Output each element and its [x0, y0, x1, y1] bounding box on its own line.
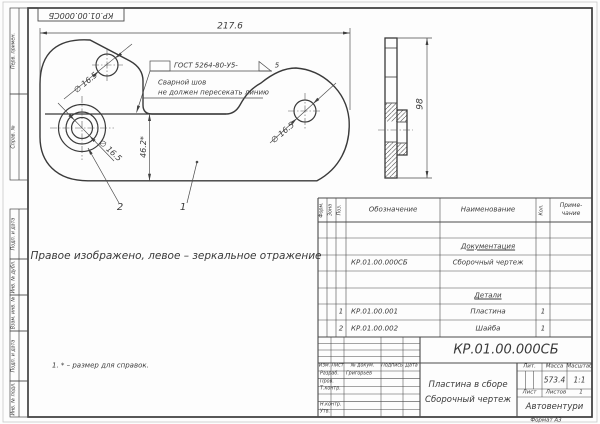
- spec-header-note-line2: чание: [562, 211, 581, 217]
- margin-label-inv-podl: Инв. № подл.: [12, 382, 17, 415]
- dim-height-label: 98: [417, 98, 426, 109]
- spec-section-parts: Детали: [474, 293, 501, 300]
- titleblock-role-developed: Разраб.: [320, 373, 339, 378]
- spec-row-pos: 2: [339, 325, 343, 332]
- weld-leg-label: 5: [275, 63, 279, 70]
- weld-note-line1: Сварной шов: [158, 80, 206, 87]
- margin-label-inv-dubl: Инв. № дубл.: [12, 261, 17, 294]
- spec-row-qty: 1: [541, 309, 545, 316]
- spec-header-name: Наименование: [461, 207, 515, 214]
- mirror-note: Правое изображено, левое – зеркальное от…: [30, 251, 321, 262]
- titleblock-scale-value: 1:1: [573, 376, 585, 384]
- titleblock-doc-name: Пластина в сборе: [428, 381, 507, 390]
- spec-row-designation: КР.01.00.001: [351, 309, 398, 316]
- spec-header-note-line1: Приме-: [560, 203, 583, 209]
- spec-row-name: Шайба: [476, 325, 501, 332]
- spec-header-pos: Поз.: [339, 205, 344, 216]
- titleblock-sheets-value: 1: [579, 390, 583, 396]
- margin-label-podp-data-2: Подп. и дата: [12, 340, 17, 373]
- dim-width-label: 217.6: [217, 23, 243, 32]
- spec-row-name: Сборочный чертеж: [453, 260, 524, 267]
- format-label: Формат А3: [530, 418, 561, 424]
- titleblock-litera-label: Лит.: [523, 364, 536, 370]
- drawing-sheet: КР.01.00.000СБ Перв. примен. Справ. № По…: [0, 0, 600, 424]
- titleblock-mass-label: Масса: [546, 364, 564, 370]
- spec-section-documentation: Документация: [461, 243, 515, 250]
- titleblock-company: Автовентури: [526, 403, 584, 412]
- titleblock-scale-label: Масштаб: [566, 364, 592, 370]
- spec-header-zone: Зона: [329, 204, 334, 216]
- spec-row-qty: 1: [541, 325, 545, 332]
- titleblock-role-ncontrol: Н.контр.: [320, 403, 341, 408]
- margin-label-sprav-no: Справ. №: [12, 125, 17, 148]
- titleblock-sheet-label: Лист: [523, 390, 537, 396]
- margin-label-podp-data-1: Подп. и дата: [12, 218, 17, 251]
- spec-row-designation: КР.01.00.000СБ: [351, 260, 408, 267]
- margin-label-perv-primen: Перв. примен.: [12, 33, 17, 69]
- spec-header-designation: Обозначение: [369, 207, 418, 214]
- callout-plate-number: 1: [180, 203, 186, 213]
- spec-row-name: Пластина: [470, 309, 505, 316]
- reference-note: 1. * – размер для справок.: [52, 363, 149, 370]
- dim-ref-label: 46.2*: [140, 136, 148, 158]
- titleblock-header-sign: Подпись: [381, 365, 403, 370]
- weld-note-line2: не должен пересекать линию: [158, 89, 269, 96]
- titleblock-designation: КР.01.00.000СБ: [453, 344, 558, 357]
- titleblock-role-tcontrol: Т.контр.: [320, 388, 341, 393]
- titleblock-role-checked: Пров.: [320, 380, 334, 385]
- titleblock-header-izm: Изм.: [319, 365, 330, 370]
- top-stamp-designation: КР.01.00.000СБ: [49, 11, 114, 19]
- callout-washer-number: 2: [117, 203, 123, 213]
- spec-header-format: Форм.: [320, 202, 325, 217]
- titleblock-doc-type: Сборочный чертеж: [425, 396, 511, 405]
- titleblock-role-approved: Утв.: [320, 411, 330, 416]
- titleblock-header-date: Дата: [405, 365, 417, 370]
- spec-row-designation: КР.01.00.002: [351, 325, 398, 332]
- titleblock-developed-name: Григорьев: [346, 373, 372, 378]
- spec-header-qty: Кол.: [541, 205, 546, 216]
- titleblock-mass-value: 573.4: [544, 376, 565, 384]
- titleblock-header-list: Лист: [331, 365, 343, 370]
- titleblock-sheets-label: Листов: [546, 390, 567, 396]
- callout-dot: [196, 161, 199, 164]
- titleblock-header-doc: № докум.: [351, 365, 375, 370]
- spec-row-pos: 1: [339, 309, 343, 316]
- margin-label-vzam-inv: Взам. инв. №: [12, 297, 17, 330]
- weld-gost-label: ГОСТ 5264-80-У5-: [174, 63, 238, 70]
